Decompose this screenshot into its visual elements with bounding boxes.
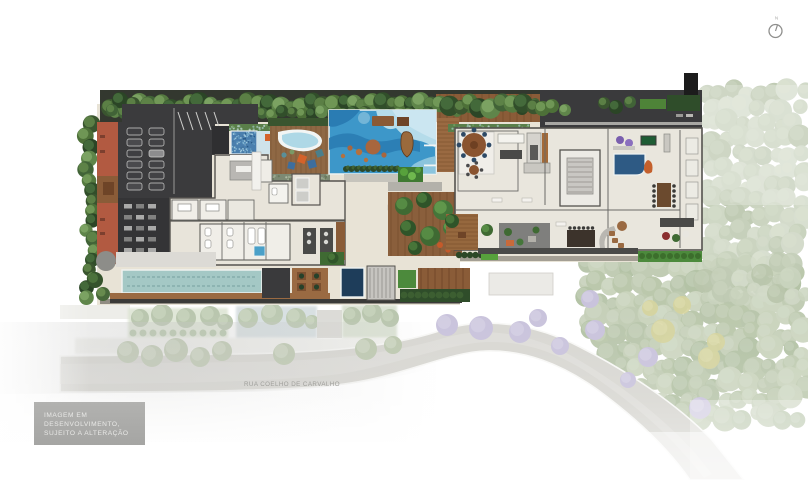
svg-text:N: N [775,16,778,21]
svg-text:DESENVOLVIMENTO,: DESENVOLVIMENTO, [44,421,120,428]
svg-text:IMAGEM EM: IMAGEM EM [44,412,87,419]
svg-text:RUA COELHO DE CARVALHO: RUA COELHO DE CARVALHO [244,381,340,388]
svg-text:SUJEITO A ALTERAÇÃO: SUJEITO A ALTERAÇÃO [44,428,129,437]
